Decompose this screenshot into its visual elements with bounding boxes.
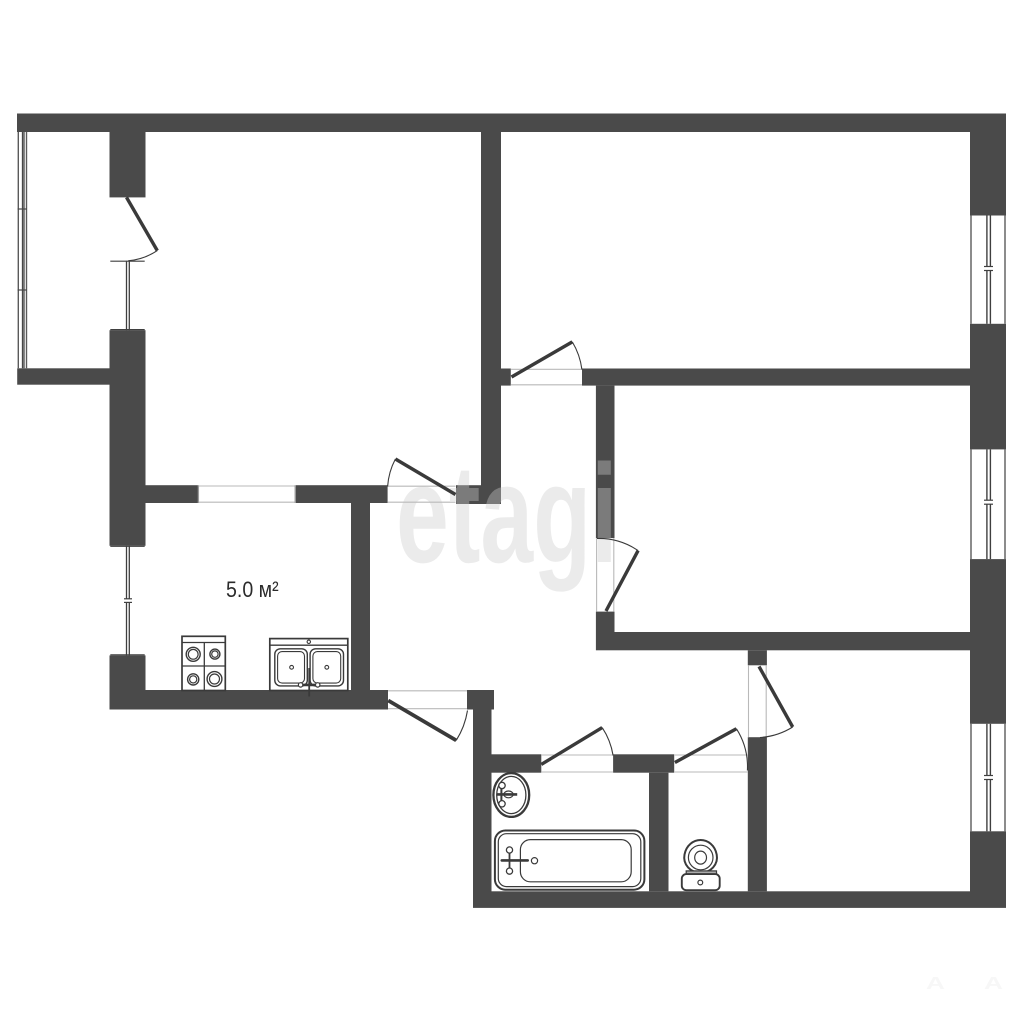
svg-text:5.0 м²: 5.0 м²	[226, 578, 279, 603]
svg-text:A: A	[926, 973, 945, 993]
svg-text:etagi: etagi	[396, 437, 618, 593]
svg-text:A: A	[984, 973, 1003, 993]
